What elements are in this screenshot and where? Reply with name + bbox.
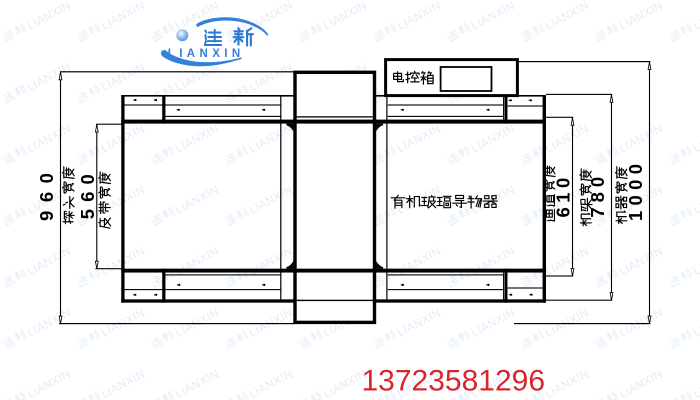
svg-text:560: 560 (77, 167, 98, 219)
svg-text:1000: 1000 (625, 159, 646, 221)
svg-text:960: 960 (36, 165, 57, 221)
svg-text:610: 610 (552, 173, 573, 217)
svg-text:780: 780 (587, 172, 608, 218)
svg-text:13723581296: 13723581296 (362, 365, 546, 398)
